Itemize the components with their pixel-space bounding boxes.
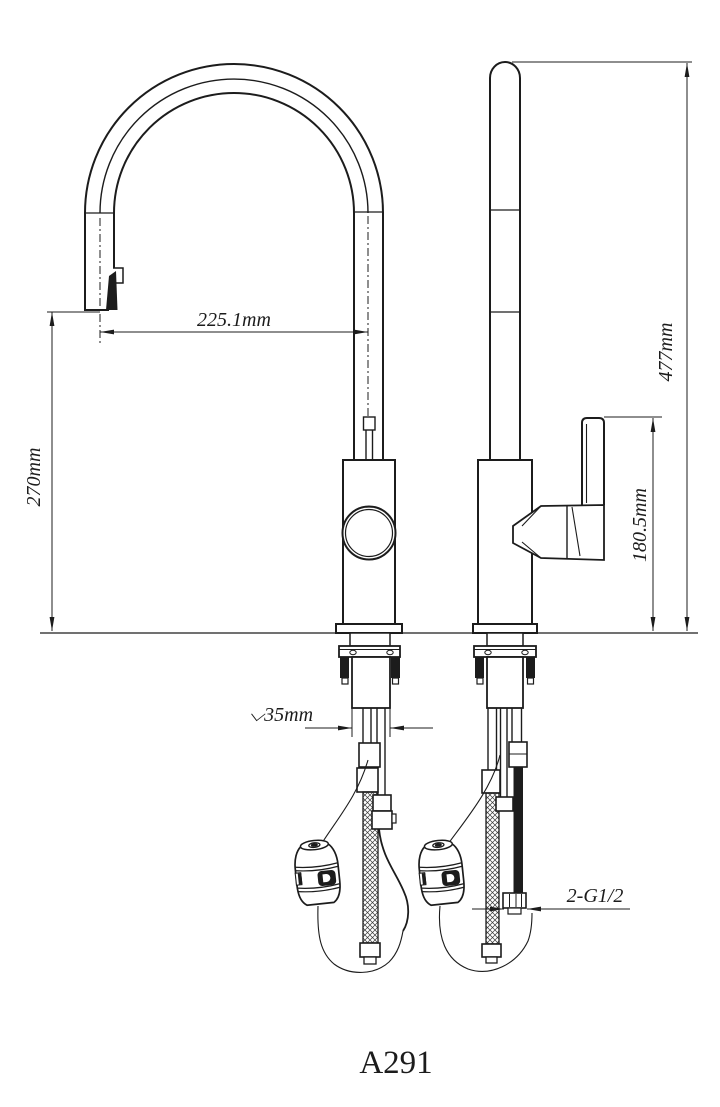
front-view-faucet <box>85 64 408 972</box>
hose-weight <box>292 838 342 906</box>
weight-cord <box>318 906 403 972</box>
black-supply-hose <box>514 767 524 893</box>
base-flange-front <box>336 624 402 633</box>
hose-end-nut <box>482 944 501 957</box>
faucet-technical-drawing: 225.1mm 270mm 477mm 180.5mm ⌵35mm 2-G1/2… <box>0 0 720 1107</box>
pull-down-hose-loop <box>379 829 408 931</box>
lever-joint-circle <box>343 507 396 560</box>
technical-drawing-page: 225.1mm 270mm 477mm 180.5mm ⌵35mm 2-G1/2… <box>0 0 720 1107</box>
pull-hose-fitting <box>496 797 513 811</box>
mounting-bolt <box>526 657 535 678</box>
threaded-shank-front <box>352 657 390 708</box>
mounting-bracket-front <box>339 646 400 657</box>
supply-thread-label: 2-G1/2 <box>567 885 624 907</box>
spout-arc-inner <box>114 93 354 213</box>
threaded-shank-side <box>487 657 523 708</box>
side-view-faucet <box>416 62 604 971</box>
mounting-bolt <box>475 657 484 678</box>
spout-arc-middle <box>100 79 368 213</box>
base-flange-side <box>473 624 537 633</box>
spout-column <box>490 62 520 460</box>
model-number-label: A291 <box>359 1045 432 1081</box>
spout-arc-outer <box>85 64 383 213</box>
hose-end-nut <box>360 943 380 957</box>
spray-head-outline <box>85 213 109 310</box>
lever-rod-cap <box>364 417 376 430</box>
g-half-thread-nut <box>503 893 526 908</box>
mounting-bracket-side <box>474 646 536 657</box>
mounting-bolt <box>340 657 349 678</box>
braided-supply-hose <box>486 793 499 944</box>
handle-height-label: 180.5mm <box>629 488 651 562</box>
dimension-spout-height <box>47 312 100 631</box>
spout-reach-label: 225.1mm <box>197 309 271 331</box>
spray-head-nozzle <box>106 271 118 310</box>
shank-diameter-label: ⌵35mm <box>249 704 313 726</box>
hose-connector-nut <box>359 743 380 767</box>
mounting-bolt <box>391 657 400 678</box>
hose-weight <box>416 838 466 906</box>
dimension-shank-diameter <box>305 708 433 737</box>
pull-hose-fitting <box>373 795 391 811</box>
spout-height-label: 270mm <box>23 448 45 507</box>
overall-height-label: 477mm <box>655 323 677 382</box>
handle-lever <box>582 418 604 505</box>
hose-connector-nut <box>482 770 500 793</box>
